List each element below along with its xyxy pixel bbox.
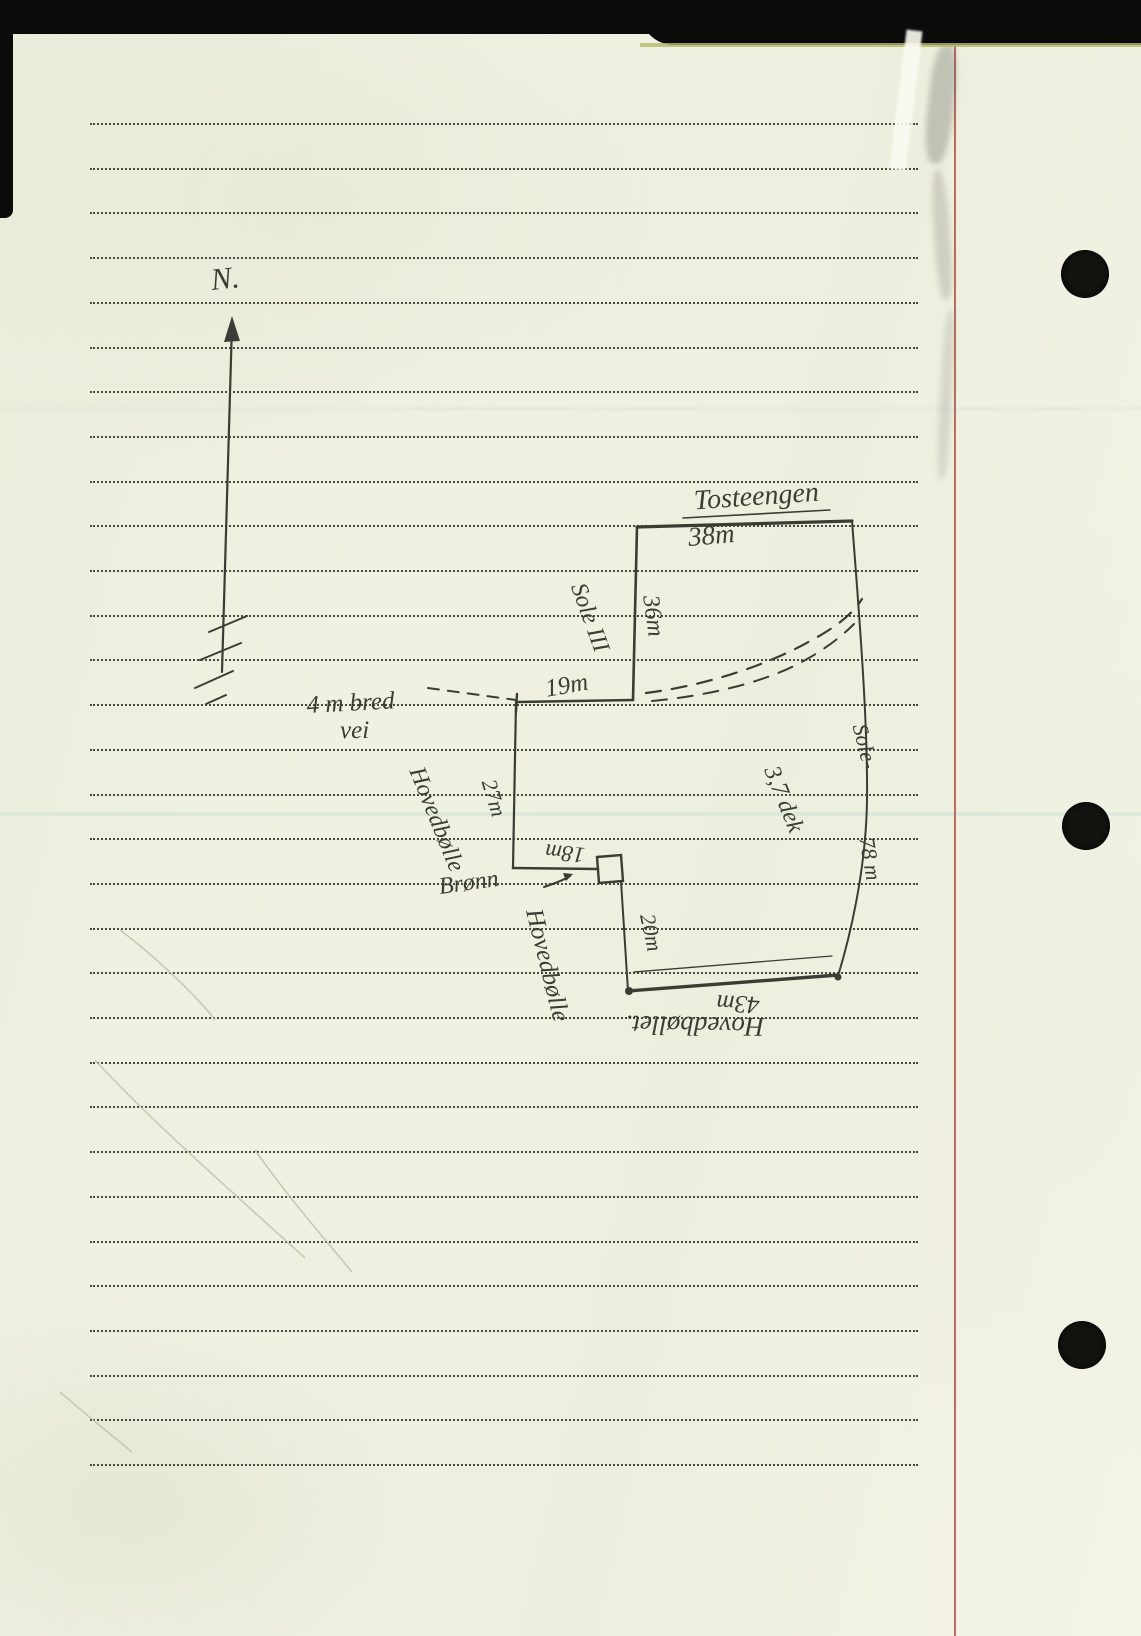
hatch-mark: [200, 643, 241, 660]
paper-scratch: [95, 1060, 305, 1258]
lower-neighbor-name: Hovedbølle: [520, 905, 574, 1024]
parcel-mid-edge: [517, 700, 633, 702]
north-arrow-head: [224, 316, 240, 342]
north-arrow-shaft: [222, 324, 232, 672]
parcel-upper-left-edge: [633, 527, 637, 700]
middle-length: 19m: [543, 669, 590, 703]
parcel-bottom-edge: [628, 975, 838, 991]
well-side-length: 18m: [544, 839, 586, 868]
scan-border-left: [0, 0, 13, 218]
scanned-notebook-page: N.: [0, 0, 1141, 1636]
parcel-outline: [513, 521, 867, 995]
lower-left-length: 20m: [635, 911, 667, 953]
diagonal-dashed-line: [652, 624, 854, 701]
sketch-labels: Tosteengen 38m 36m Sole III 19m 4 m bred…: [306, 477, 887, 1043]
north-label: N.: [208, 259, 241, 297]
area-label: 3,7 dek: [758, 761, 809, 836]
punch-hole: [1058, 1321, 1106, 1369]
right-length: 78 m: [854, 835, 886, 882]
road-label-line1: 4 m bred: [306, 687, 396, 719]
plot-sketch: N.: [0, 0, 1141, 1636]
right-neighbor-name: Sole-: [848, 721, 883, 771]
bottom-neighbor-name: Hovedbøllet.: [625, 1010, 765, 1042]
well-square: [597, 855, 623, 883]
diagonal-dashed-line: [646, 599, 862, 693]
upper-parcel-name: Sole III: [565, 580, 614, 657]
parcel-well-edge: [513, 868, 598, 869]
upper-left-length: 36m: [637, 593, 669, 639]
paper-scratch: [255, 1150, 352, 1272]
paper-scratch: [120, 930, 215, 1020]
parcel-bottom-thin-line: [634, 956, 832, 972]
parcel-lower-left-edge: [621, 881, 628, 991]
paper-scratch: [60, 1392, 132, 1452]
parcel-left-edge: [513, 702, 516, 868]
punch-hole: [1061, 250, 1109, 298]
page-edge-highlight: [640, 43, 1141, 47]
hatch-mark: [209, 616, 247, 632]
boundary-point: [625, 987, 633, 995]
top-boundary-length: 38m: [686, 518, 736, 552]
punch-hole: [1062, 802, 1110, 850]
parcel-top-edge: [637, 521, 852, 527]
north-arrow: N.: [195, 259, 247, 704]
top-boundary-name: Tosteengen: [693, 477, 820, 517]
hatch-mark: [195, 671, 233, 688]
hatch-mark: [206, 695, 226, 704]
left-length: 27m: [477, 776, 512, 820]
road-label-line2: vei: [340, 717, 369, 744]
left-neighbor-name: Hovedbølle: [403, 762, 469, 876]
scan-border-top-right: [640, 0, 1141, 45]
road-dashed-line: [428, 688, 516, 700]
